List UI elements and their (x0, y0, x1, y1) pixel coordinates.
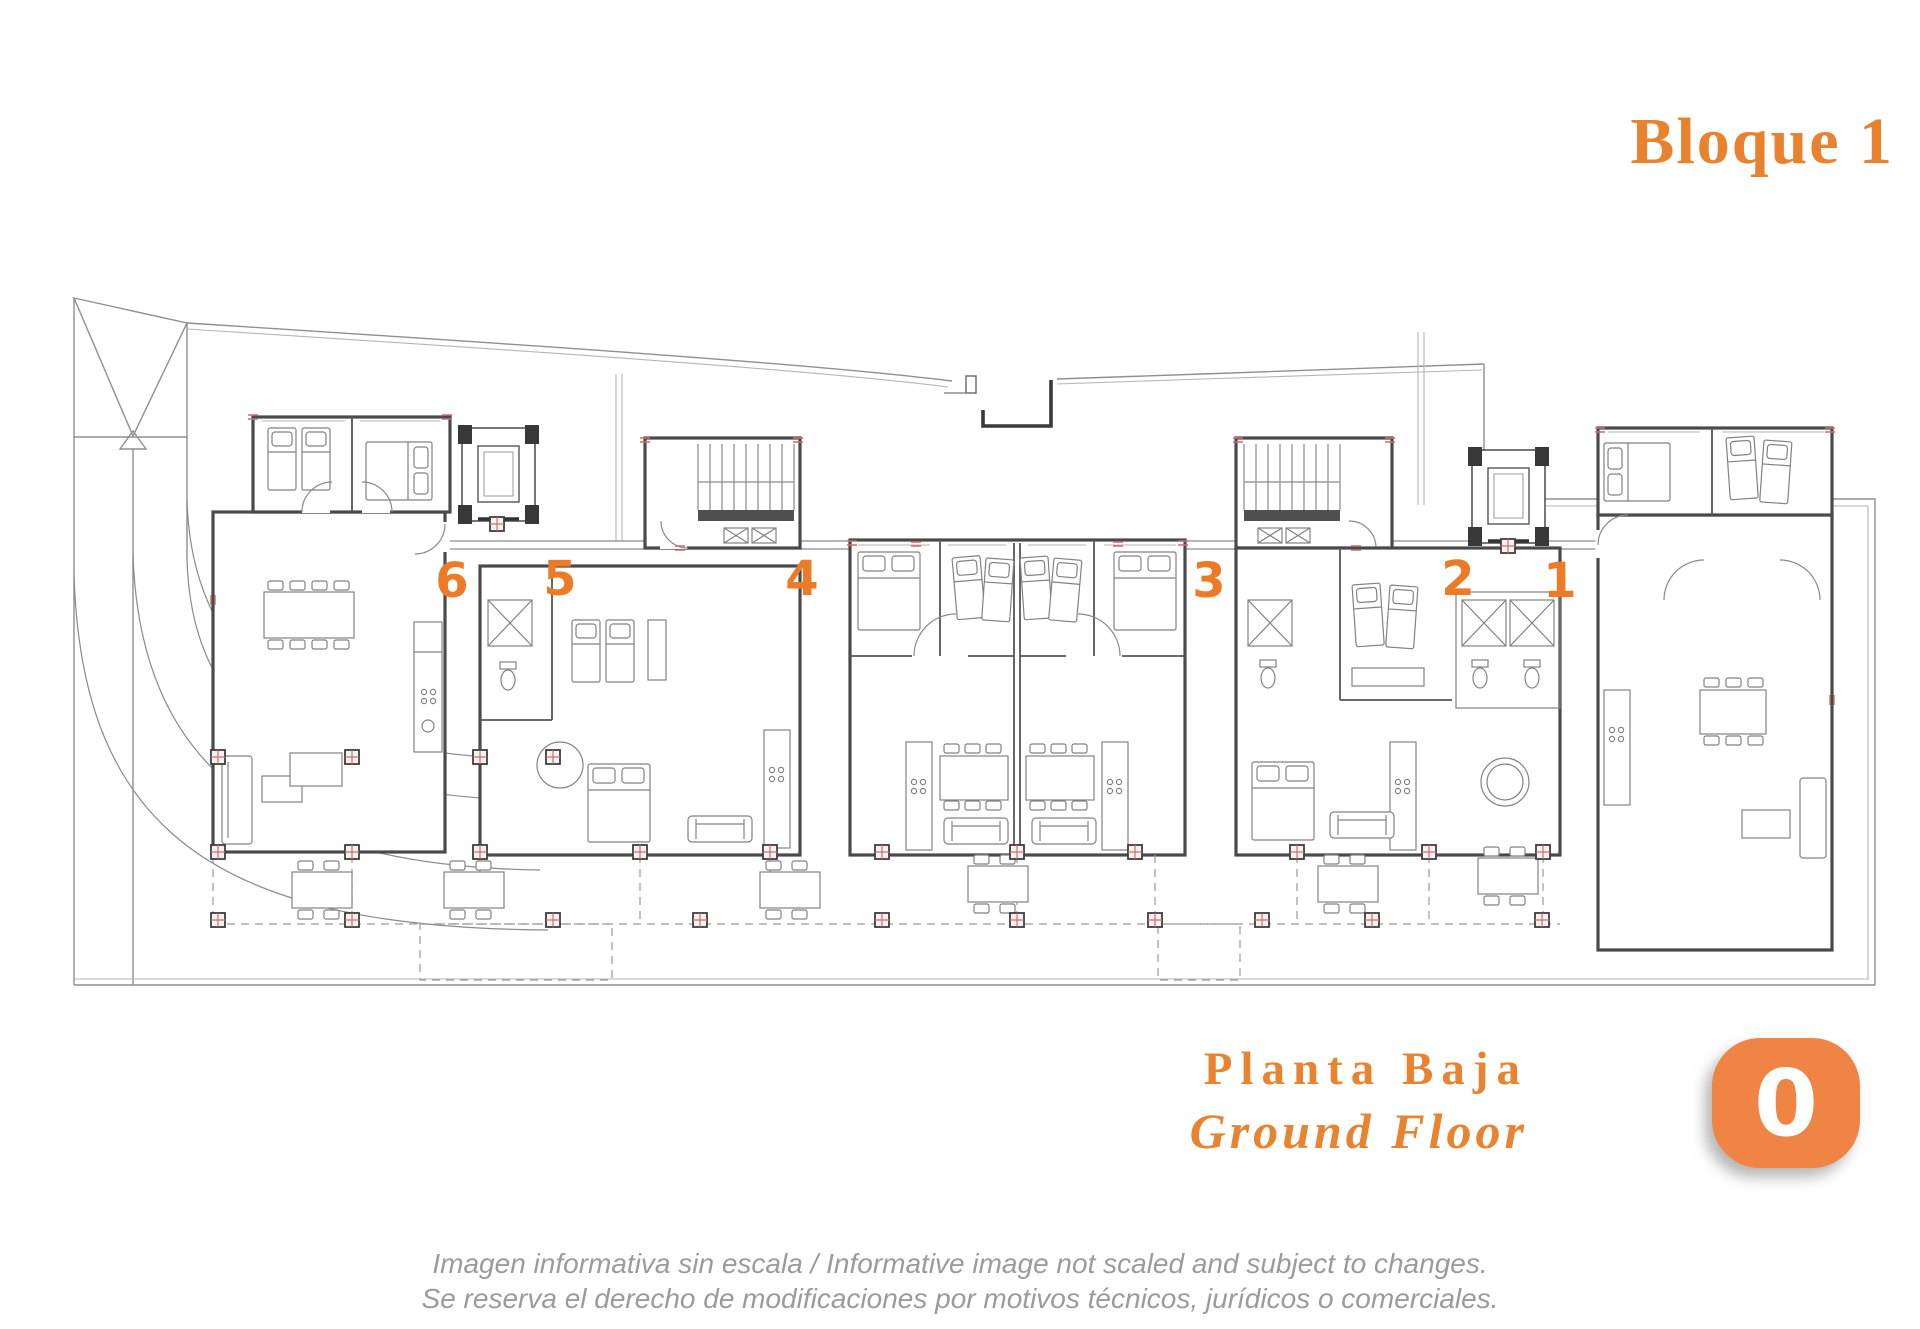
apartment-number-4[interactable]: 4 (785, 551, 818, 607)
apartment-number-1[interactable]: 1 (1543, 553, 1576, 609)
disclaimer-line-1: Imagen informativa sin escala / Informat… (0, 1246, 1920, 1281)
floor-name-english: Ground Floor (1190, 1102, 1528, 1160)
apartment-number-2[interactable]: 2 (1441, 551, 1474, 607)
disclaimer: Imagen informativa sin escala / Informat… (0, 1246, 1920, 1316)
disclaimer-line-2: Se reserva el derecho de modificaciones … (0, 1281, 1920, 1316)
apartment-number-3[interactable]: 3 (1192, 553, 1225, 609)
apartment-number-5[interactable]: 5 (543, 551, 576, 607)
floor-plan-drawing: 6 5 4 3 2 1 (0, 0, 1920, 1329)
apartment-number-6[interactable]: 6 (435, 553, 468, 609)
apartment-1 (1598, 428, 1832, 950)
floor-label: Planta Baja Ground Floor (1190, 1042, 1528, 1160)
floor-name-spanish: Planta Baja (1190, 1042, 1528, 1096)
apartment-6 (213, 417, 450, 852)
stair-core-right (1236, 438, 1392, 548)
stair-core-left (645, 438, 800, 548)
elevator-right (1468, 447, 1549, 546)
apartment-4-and-3 (850, 540, 1185, 855)
apartment-5 (480, 566, 800, 855)
elevator-left (458, 425, 539, 524)
apartment-2 (1236, 548, 1560, 855)
floor-level-badge[interactable]: 0 (1712, 1038, 1860, 1168)
